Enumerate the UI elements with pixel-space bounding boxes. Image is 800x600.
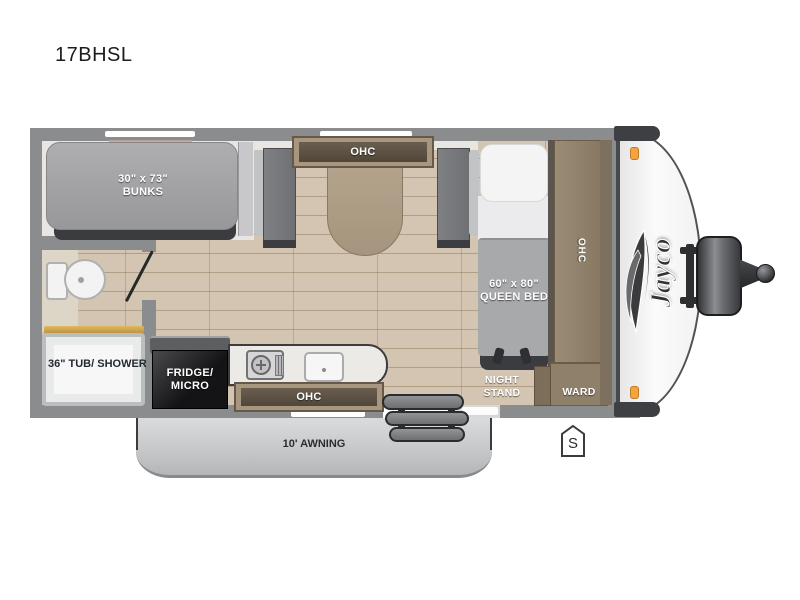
awning-edge xyxy=(490,418,492,450)
brand-logo: Jayco xyxy=(645,203,679,343)
hitch-frame-bar xyxy=(686,244,694,308)
fridge-label: FRIDGE/ MICRO xyxy=(167,367,214,393)
toilet-icon xyxy=(64,259,106,300)
cap-bottom-band xyxy=(614,402,660,417)
kitchen-ohc-face: OHC xyxy=(241,388,377,406)
night-stand-label: NIGHT STAND xyxy=(472,374,532,400)
queen-bed-label: 60" x 80" QUEEN BED xyxy=(480,278,548,304)
front-cabinet-face xyxy=(600,140,612,405)
toilet-flush-dot xyxy=(78,277,84,283)
bed-sheet xyxy=(478,196,550,244)
bunk-end-panel xyxy=(238,142,253,236)
propane-tank-icon xyxy=(696,236,742,316)
floorplan-page: 17BHSL 36" TUB/ SHOWER 30" x 73" BUNKS xyxy=(0,0,800,600)
entry-steps-icon xyxy=(385,411,469,426)
bed-pillow xyxy=(480,144,548,202)
entry-steps-icon xyxy=(382,394,464,410)
page-title: 17BHSL xyxy=(55,44,133,67)
sink-drain-dot xyxy=(322,368,326,372)
bunks-label: 30" x 73" BUNKS xyxy=(78,173,208,199)
awning-label: 10' AWNING xyxy=(214,438,414,451)
entry-steps-icon xyxy=(389,427,465,442)
hitch-ball-icon xyxy=(756,264,775,283)
dinette-bench-base xyxy=(437,240,470,248)
stove-burner-icon xyxy=(251,355,271,375)
fridge-micro: FRIDGE/ MICRO xyxy=(152,350,228,409)
dinette-bench xyxy=(437,148,470,242)
tub-shower-label: 36" TUB/ SHOWER xyxy=(48,358,140,371)
sink-icon xyxy=(304,352,344,382)
night-stand xyxy=(534,366,551,406)
dinette-ohc-cabinet: OHC xyxy=(292,136,434,168)
marker-light-icon xyxy=(630,147,639,160)
dinette-ohc-face: OHC xyxy=(299,142,427,162)
wardrobe-label: WARD xyxy=(552,386,606,399)
spare-badge-icon: S xyxy=(560,424,586,458)
side-ohc-label: OHC xyxy=(575,236,588,266)
window-strip xyxy=(105,131,195,137)
cap-top-band xyxy=(614,126,660,141)
marker-light-icon xyxy=(630,386,639,399)
dinette-bench-base xyxy=(263,240,296,248)
wall-rear xyxy=(30,128,42,418)
kitchen-ohc-label: OHC xyxy=(296,391,321,404)
dinette-ohc-label: OHC xyxy=(350,146,375,159)
awning-edge xyxy=(136,418,138,450)
stove-grill xyxy=(275,355,284,376)
svg-text:S: S xyxy=(568,435,578,452)
kitchen-ohc-cabinet: OHC xyxy=(234,382,384,412)
